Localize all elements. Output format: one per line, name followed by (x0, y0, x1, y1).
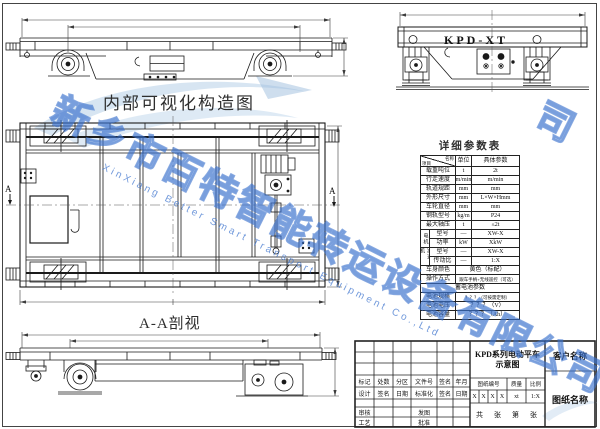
row-label: 功率 (429, 239, 455, 247)
side-view-dimensions (22, 18, 348, 76)
section-view-drawing (6, 332, 339, 396)
battery-row: 电池规格？？？（可按需定制） (421, 292, 519, 301)
parameter-table-title: 详细参数表 (420, 138, 520, 153)
drive-unit (245, 360, 303, 395)
row-label: 操作方式 (421, 275, 455, 283)
color-row: 车身颜色黄色（标配） (421, 265, 519, 274)
tb-drawingno-cell: X (470, 390, 479, 403)
header-name: 名称 (445, 156, 454, 161)
row-label: 电池规格 (421, 293, 455, 301)
end-view-drawing: KPD-XT (396, 10, 589, 95)
row-label: 型号 (429, 248, 455, 256)
reducer-group: 减速机 型号—XW-X 传动比—1:X (421, 247, 519, 265)
end-view-model-label: KPD-XT (444, 33, 508, 47)
table-row: 外形尺寸mmL×W×Hmm (421, 193, 519, 202)
row-label: 钢轨型号 (421, 212, 455, 220)
row-value: ？？？（Ah） (455, 311, 519, 319)
row-label: 型号 (429, 230, 455, 238)
product-title-line2: 示意图 (496, 360, 520, 370)
tb-scale-label: 比例 (526, 378, 545, 390)
table-row: 车轮直径mmmm (421, 202, 519, 211)
tb-approve-label: 批准 (411, 417, 437, 427)
tb-issue-label: 发图 (411, 407, 437, 417)
row-unit: mm (455, 203, 471, 211)
tb-design-sign: 签名 (374, 387, 393, 399)
ground-line (396, 87, 589, 90)
row-value: ≤2t (471, 221, 519, 229)
battery-header: 蓄电池参数 (421, 284, 519, 292)
end-wheel-left (403, 47, 429, 80)
row-value: 2t (471, 167, 519, 175)
row-label: 电池电压 (421, 302, 455, 310)
tb-product-title: KPD系列电动平车 示意图 (471, 343, 544, 377)
plan-view-caption: 内部可视化构造图 (103, 89, 255, 114)
table-row: 型号—XW-X (429, 230, 519, 238)
tb-drawingno-label: 图纸编号 (470, 378, 507, 390)
tb-sign-label: 签名 (437, 375, 453, 387)
row-value: 黄色（标配） (455, 266, 519, 274)
tb-count-label: 处数 (374, 375, 393, 387)
connector-box-right (299, 239, 314, 253)
header-unit: 单位 (455, 156, 471, 166)
row-unit: mm (455, 194, 471, 202)
tb-drawing-name: 图纸名称 (545, 371, 595, 427)
row-label: 行走速度 (421, 176, 455, 184)
row-value: ？？？（可按需定制） (455, 293, 519, 301)
row-unit: kW (455, 239, 471, 247)
section-view-caption: A-A剖视 (139, 312, 201, 333)
row-value: mm (471, 185, 519, 193)
row-label: 车身颜色 (421, 266, 455, 274)
table-row: 最大轴压t≤2t (421, 220, 519, 229)
row-unit: t (455, 221, 471, 229)
row-value: P24 (471, 212, 519, 220)
tb-drawingno-cell: X (479, 390, 488, 403)
row-unit: t (455, 167, 471, 175)
row-value: L×W×Hmm (471, 194, 519, 202)
row-label: 电池容量 (421, 311, 455, 319)
operation-row: 操作方式跟车手柄+无线遥控（可选） (421, 274, 519, 283)
row-value: m/min (471, 176, 519, 184)
table-row: 传动比—1:X (429, 256, 519, 265)
product-title-line1: KPD系列电动平车 (475, 350, 540, 360)
connector-box-left (21, 169, 36, 183)
row-value: 1:X (471, 257, 519, 265)
control-panel (477, 49, 514, 74)
battery-box (30, 196, 68, 243)
section-marker-a-right: A (329, 186, 336, 196)
tb-standard-date: 日期 (453, 387, 470, 399)
table-row: 型号—XW-X (429, 248, 519, 256)
tb-weight-label: 质量 (507, 378, 526, 390)
table-row: 行走速度m/minm/min (421, 175, 519, 184)
table-header-row: 名称 项目 单位 具体参数 (421, 156, 519, 166)
tb-scale-value: 1:X (526, 390, 545, 403)
reducer-group-label: 减速机 (421, 248, 429, 265)
header-item: 项目 (422, 161, 431, 166)
header-corner-cell: 名称 项目 (421, 156, 455, 166)
row-unit: mm (455, 185, 471, 193)
hook-bracket (70, 210, 79, 232)
parameter-table: 名称 项目 单位 具体参数 载重吨位t2t 行走速度m/minm/min 轨道规… (420, 155, 520, 320)
tb-weight-value: xt (507, 390, 526, 403)
header-value: 具体参数 (471, 156, 519, 166)
tb-process-label: 工艺 (355, 417, 374, 427)
tb-sheet-info: 共 张 第 张 (470, 403, 545, 427)
motor-group-label: 电机 (421, 230, 429, 247)
battery-header-row: 蓄电池参数 (421, 283, 519, 292)
motor-assembly (261, 155, 295, 254)
table-row: 轨道规距mmmm (421, 184, 519, 193)
side-view-drawing (6, 18, 348, 80)
row-label: 最大轴压 (421, 221, 455, 229)
row-unit: kg/m (455, 212, 471, 220)
rails (402, 80, 551, 86)
row-value: mm (471, 203, 519, 211)
row-label: 载重吨位 (421, 167, 455, 175)
row-label: 车轮直径 (421, 203, 455, 211)
section-marker-a-left: A (5, 184, 12, 194)
row-value: XkW (471, 239, 519, 247)
tb-date-label: 年月 (453, 375, 470, 387)
tb-zone-label: 分区 (393, 375, 411, 387)
plan-view-drawing: A A (5, 116, 342, 305)
table-row: 载重吨位t2t (421, 166, 519, 175)
table-row: 功率kWXkW (429, 238, 519, 247)
tb-design-date: 日期 (393, 387, 411, 399)
tb-drawingno-cell: X (497, 390, 507, 403)
row-unit: m/min (455, 176, 471, 184)
tb-design-label: 设计 (355, 387, 374, 399)
row-value: 跟车手柄+无线遥控（可选） (455, 275, 519, 283)
tb-drawingno-cell: X (488, 390, 497, 403)
tb-customer-name: 客户名称 (545, 341, 595, 371)
battery-row: 电池容量？？？（Ah） (421, 310, 519, 319)
tb-standard-label: 标准化 (411, 387, 437, 399)
row-label: 传动比 (429, 257, 455, 265)
row-value: XW-X (471, 230, 519, 238)
tb-mark-label: 标记 (355, 375, 374, 387)
tb-standard-sign: 签名 (437, 387, 453, 399)
tb-audit-label: 审核 (355, 407, 374, 417)
row-value: XW-X (471, 248, 519, 256)
battery-row: 电池电压？？？（V） (421, 301, 519, 310)
motor-group: 电机 型号—XW-X 功率kWXkW (421, 229, 519, 247)
table-row: 钢轨型号kg/mP24 (421, 211, 519, 220)
row-unit: — (455, 248, 471, 256)
row-unit: — (455, 257, 471, 265)
row-value: ？？？（V） (455, 302, 519, 310)
row-label: 外形尺寸 (421, 194, 455, 202)
row-unit: — (455, 230, 471, 238)
tb-docno-label: 文件号 (411, 375, 437, 387)
row-label: 轨道规距 (421, 185, 455, 193)
